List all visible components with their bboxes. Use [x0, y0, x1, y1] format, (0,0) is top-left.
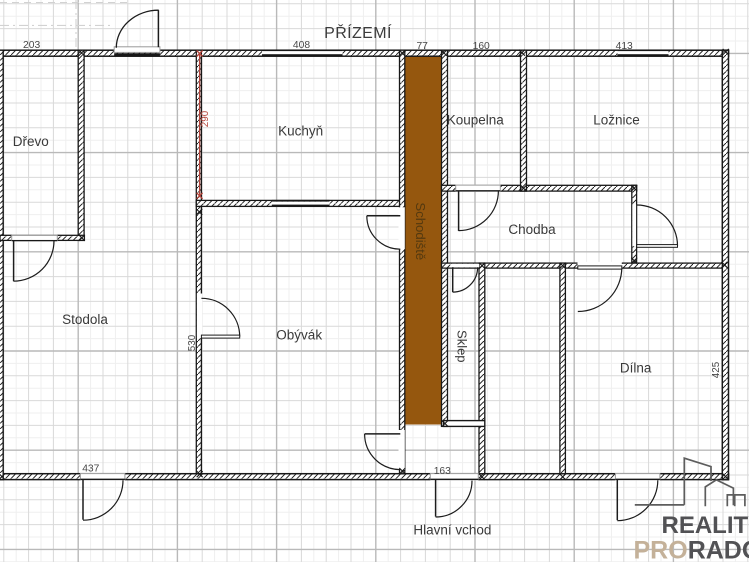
svg-text:PŘÍZEMÍ: PŘÍZEMÍ	[324, 23, 392, 42]
svg-text:Schodiště: Schodiště	[413, 202, 428, 260]
svg-text:Sklep: Sklep	[454, 330, 469, 363]
svg-text:Kuchyň: Kuchyň	[278, 124, 323, 139]
svg-text:Dílna: Dílna	[620, 360, 652, 375]
svg-text:290: 290	[200, 110, 211, 127]
svg-text:Chodba: Chodba	[508, 222, 556, 237]
svg-text:530: 530	[187, 334, 198, 351]
svg-text:203: 203	[23, 40, 40, 51]
svg-text:437: 437	[82, 464, 99, 475]
svg-text:408: 408	[293, 40, 310, 51]
svg-text:Obývák: Obývák	[276, 328, 322, 343]
svg-text:Hlavní vchod: Hlavní vchod	[413, 522, 491, 537]
svg-text:Ložnice: Ložnice	[593, 113, 640, 128]
svg-text:REALITY: REALITY	[662, 512, 749, 539]
svg-text:425: 425	[711, 361, 722, 378]
svg-text:PRORADOST: PRORADOST	[634, 536, 749, 562]
svg-text:77: 77	[416, 41, 428, 52]
svg-text:413: 413	[616, 41, 633, 52]
svg-text:Koupelna: Koupelna	[447, 113, 505, 128]
svg-text:163: 163	[434, 466, 451, 477]
svg-text:160: 160	[473, 41, 490, 52]
svg-text:Dřevo: Dřevo	[13, 134, 49, 149]
svg-text:Stodola: Stodola	[62, 312, 108, 327]
